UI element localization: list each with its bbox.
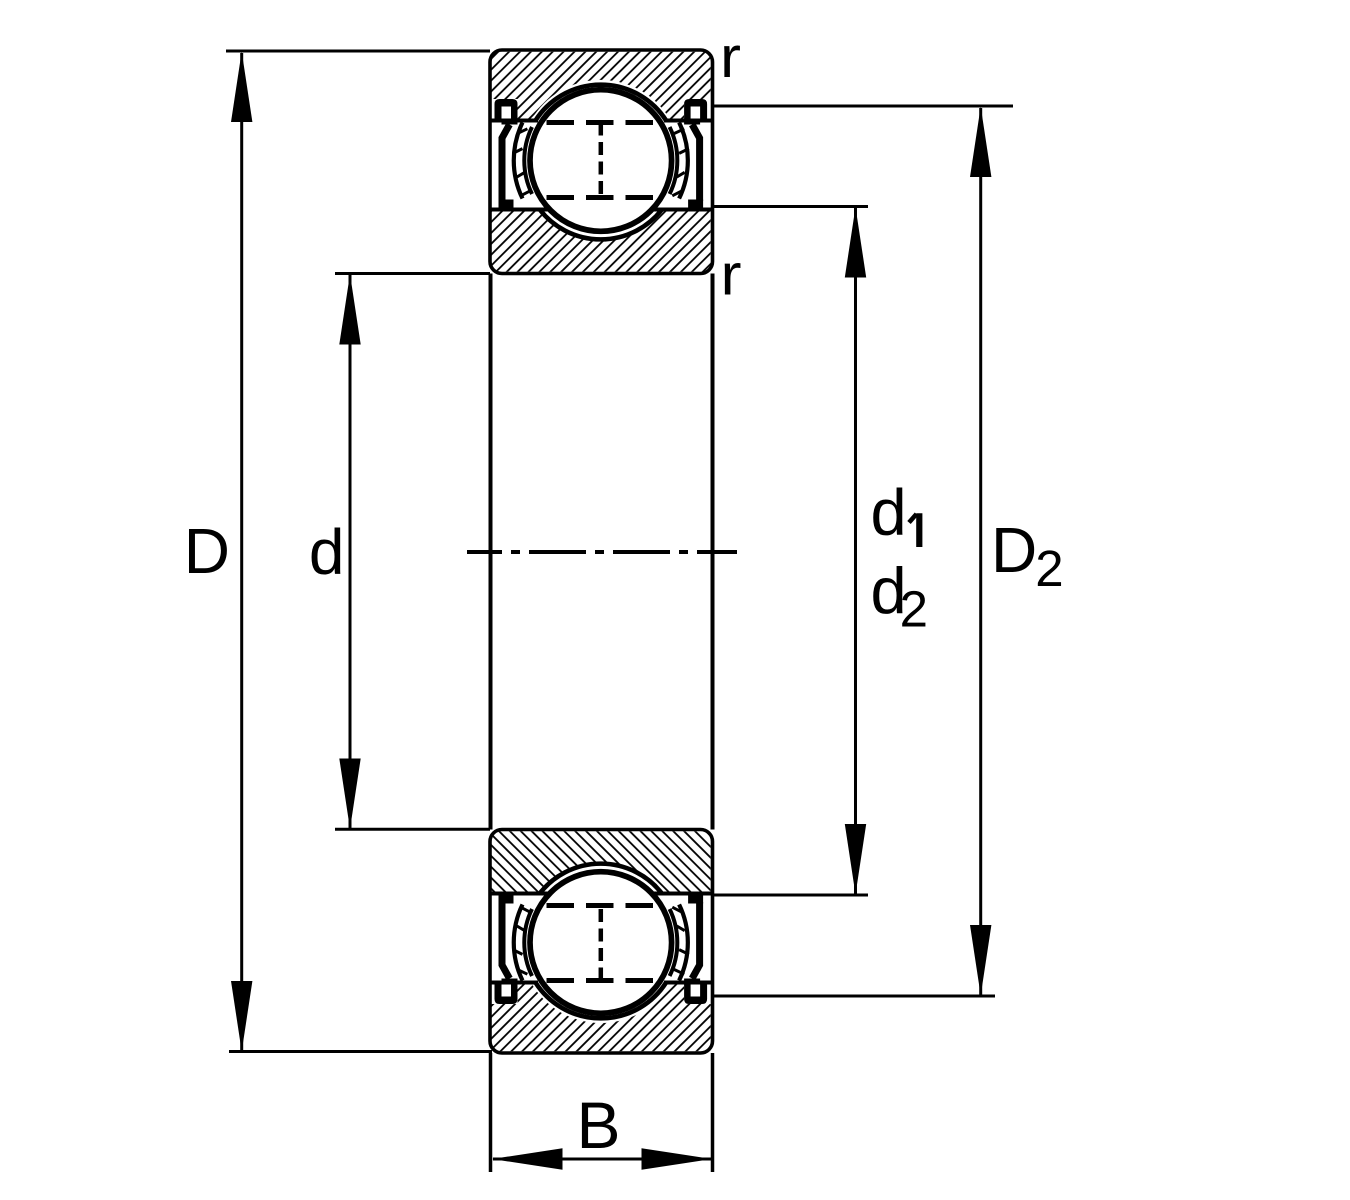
- svg-text:d: d: [309, 516, 345, 588]
- svg-text:d2: d2: [871, 554, 929, 638]
- svg-text:r: r: [720, 25, 741, 90]
- svg-text:r: r: [721, 243, 742, 308]
- svg-text:D: D: [184, 515, 230, 587]
- svg-text:D2: D2: [991, 514, 1064, 597]
- svg-text:d: d: [871, 476, 907, 549]
- svg-text:B: B: [576, 1088, 620, 1162]
